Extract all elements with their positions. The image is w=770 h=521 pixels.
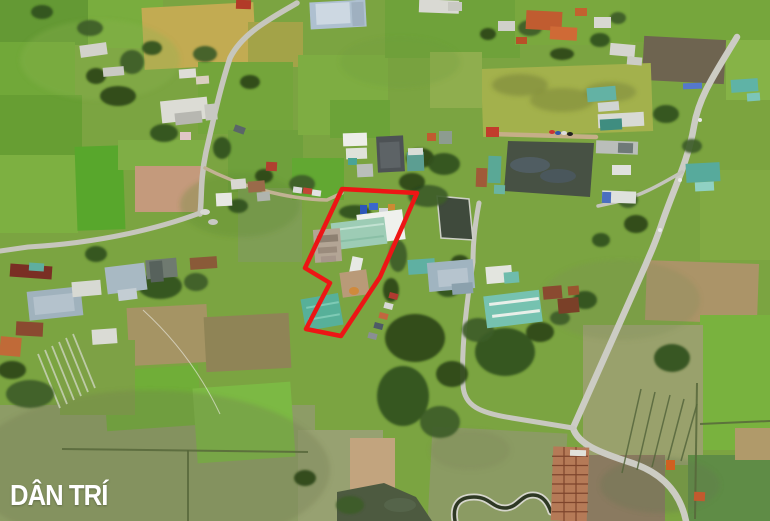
field-patch <box>204 313 292 372</box>
building-roof <box>369 203 378 210</box>
building-roof <box>266 162 277 172</box>
building-roof <box>575 8 587 16</box>
field-patch <box>0 155 78 233</box>
building-roof <box>550 26 578 40</box>
field-patch <box>735 428 770 460</box>
building-roof <box>568 286 580 296</box>
building-roof <box>488 156 502 183</box>
tree-cluster <box>590 33 610 47</box>
building-roof <box>747 93 761 102</box>
building-roof <box>190 256 218 270</box>
building-roof <box>602 192 611 203</box>
building-roof <box>348 158 357 165</box>
tree-cluster <box>6 380 54 408</box>
building-roof <box>346 148 367 160</box>
building-roof <box>618 143 633 154</box>
tree-cluster <box>336 496 364 514</box>
building-roof <box>312 189 322 196</box>
tree-cluster <box>592 233 610 247</box>
field-wash <box>340 37 460 87</box>
tree-cluster <box>610 12 626 24</box>
tree-cluster <box>526 322 554 342</box>
building-roof <box>231 178 247 189</box>
building-roof <box>360 205 367 214</box>
building-roof <box>248 180 266 192</box>
aerial-photo-canvas <box>0 0 770 521</box>
building-roof <box>236 0 251 9</box>
tree-cluster <box>85 246 107 262</box>
pond-sheen <box>540 169 576 183</box>
tree-cluster <box>436 361 468 387</box>
building-roof <box>315 2 350 25</box>
small-object <box>567 132 573 136</box>
building-roof <box>427 133 436 141</box>
building-roof <box>216 193 233 207</box>
field-patch <box>700 100 770 170</box>
building-roof <box>92 328 118 345</box>
pond-sheen <box>510 157 550 173</box>
building-roof <box>103 66 125 77</box>
building-roof <box>486 127 499 137</box>
tree-cluster <box>184 273 208 291</box>
field-wash <box>600 457 720 513</box>
building-roof <box>351 2 364 27</box>
tree-cluster <box>150 124 178 142</box>
building-roof <box>180 132 191 140</box>
tree-cluster <box>240 75 260 89</box>
tree-cluster <box>420 406 460 438</box>
building-roof <box>179 68 197 78</box>
dantri-watermark: DÂN TRÍ <box>10 482 107 510</box>
building-roof <box>149 260 164 282</box>
building-roof <box>257 191 271 201</box>
field-patch <box>118 140 206 170</box>
small-object <box>549 130 555 134</box>
aerial-photo: DÂN TRÍ <box>0 0 770 521</box>
small-object <box>658 228 662 232</box>
building-roof <box>321 255 336 262</box>
tree-cluster <box>624 215 648 233</box>
building-roof <box>694 492 705 502</box>
small-object <box>561 131 567 135</box>
building-roof <box>594 17 611 28</box>
tree-cluster <box>142 41 162 55</box>
tree-cluster <box>399 173 425 191</box>
building-roof <box>494 185 505 194</box>
small-object <box>349 287 359 295</box>
building-roof <box>439 131 452 144</box>
building-roof <box>71 280 101 297</box>
building-roof <box>627 56 643 65</box>
building-roof <box>504 271 520 283</box>
tree-cluster <box>550 48 574 60</box>
building-roof <box>483 290 542 329</box>
building-roof <box>516 37 527 44</box>
building-roof <box>448 2 462 11</box>
tree-cluster <box>213 137 231 159</box>
building-roof <box>357 164 374 178</box>
tree-cluster <box>654 344 690 372</box>
tree-cluster <box>428 153 460 175</box>
building-roof <box>196 76 210 85</box>
building-roof <box>610 43 636 57</box>
building-roof <box>686 162 721 183</box>
small-object <box>208 219 218 225</box>
building-roof <box>408 148 423 156</box>
tree-cluster <box>385 314 445 362</box>
building-roof <box>379 141 400 168</box>
building-roof <box>683 83 702 90</box>
building-roof <box>598 101 620 112</box>
building-roof <box>476 168 488 187</box>
building-roof <box>293 186 303 193</box>
building-roof <box>29 262 45 271</box>
small-object <box>698 118 702 122</box>
building-roof <box>303 187 313 194</box>
tree-cluster <box>31 5 53 19</box>
building-roof <box>204 103 218 120</box>
tree-cluster <box>480 28 496 40</box>
tree-cluster <box>77 20 103 36</box>
building-roof <box>498 21 515 31</box>
field-patch <box>0 95 82 157</box>
field-patch <box>330 100 390 138</box>
tree-cluster <box>193 46 217 62</box>
building-roof <box>388 204 395 210</box>
tree-cluster <box>653 105 679 123</box>
road <box>490 134 596 137</box>
tree-cluster <box>294 470 316 486</box>
small-object <box>555 131 561 135</box>
building-roof <box>586 86 616 102</box>
tree-cluster <box>100 86 136 106</box>
building-roof <box>0 336 22 357</box>
small-object <box>200 209 210 215</box>
building-roof <box>666 460 675 470</box>
building-roof <box>343 133 367 147</box>
building-roof <box>600 118 623 130</box>
building-roof <box>570 450 586 457</box>
tree-cluster <box>682 139 702 153</box>
field-patch <box>75 145 126 231</box>
building-roof <box>612 165 631 175</box>
building-roof <box>452 282 474 295</box>
field-patch <box>630 0 770 42</box>
small-object <box>678 178 682 182</box>
building-roof <box>542 285 562 300</box>
building-roof <box>695 182 714 192</box>
pond-sheen <box>384 498 416 512</box>
building-roof <box>731 78 759 93</box>
building-roof <box>117 288 137 301</box>
building-roof <box>16 321 44 336</box>
building-roof <box>557 297 579 314</box>
